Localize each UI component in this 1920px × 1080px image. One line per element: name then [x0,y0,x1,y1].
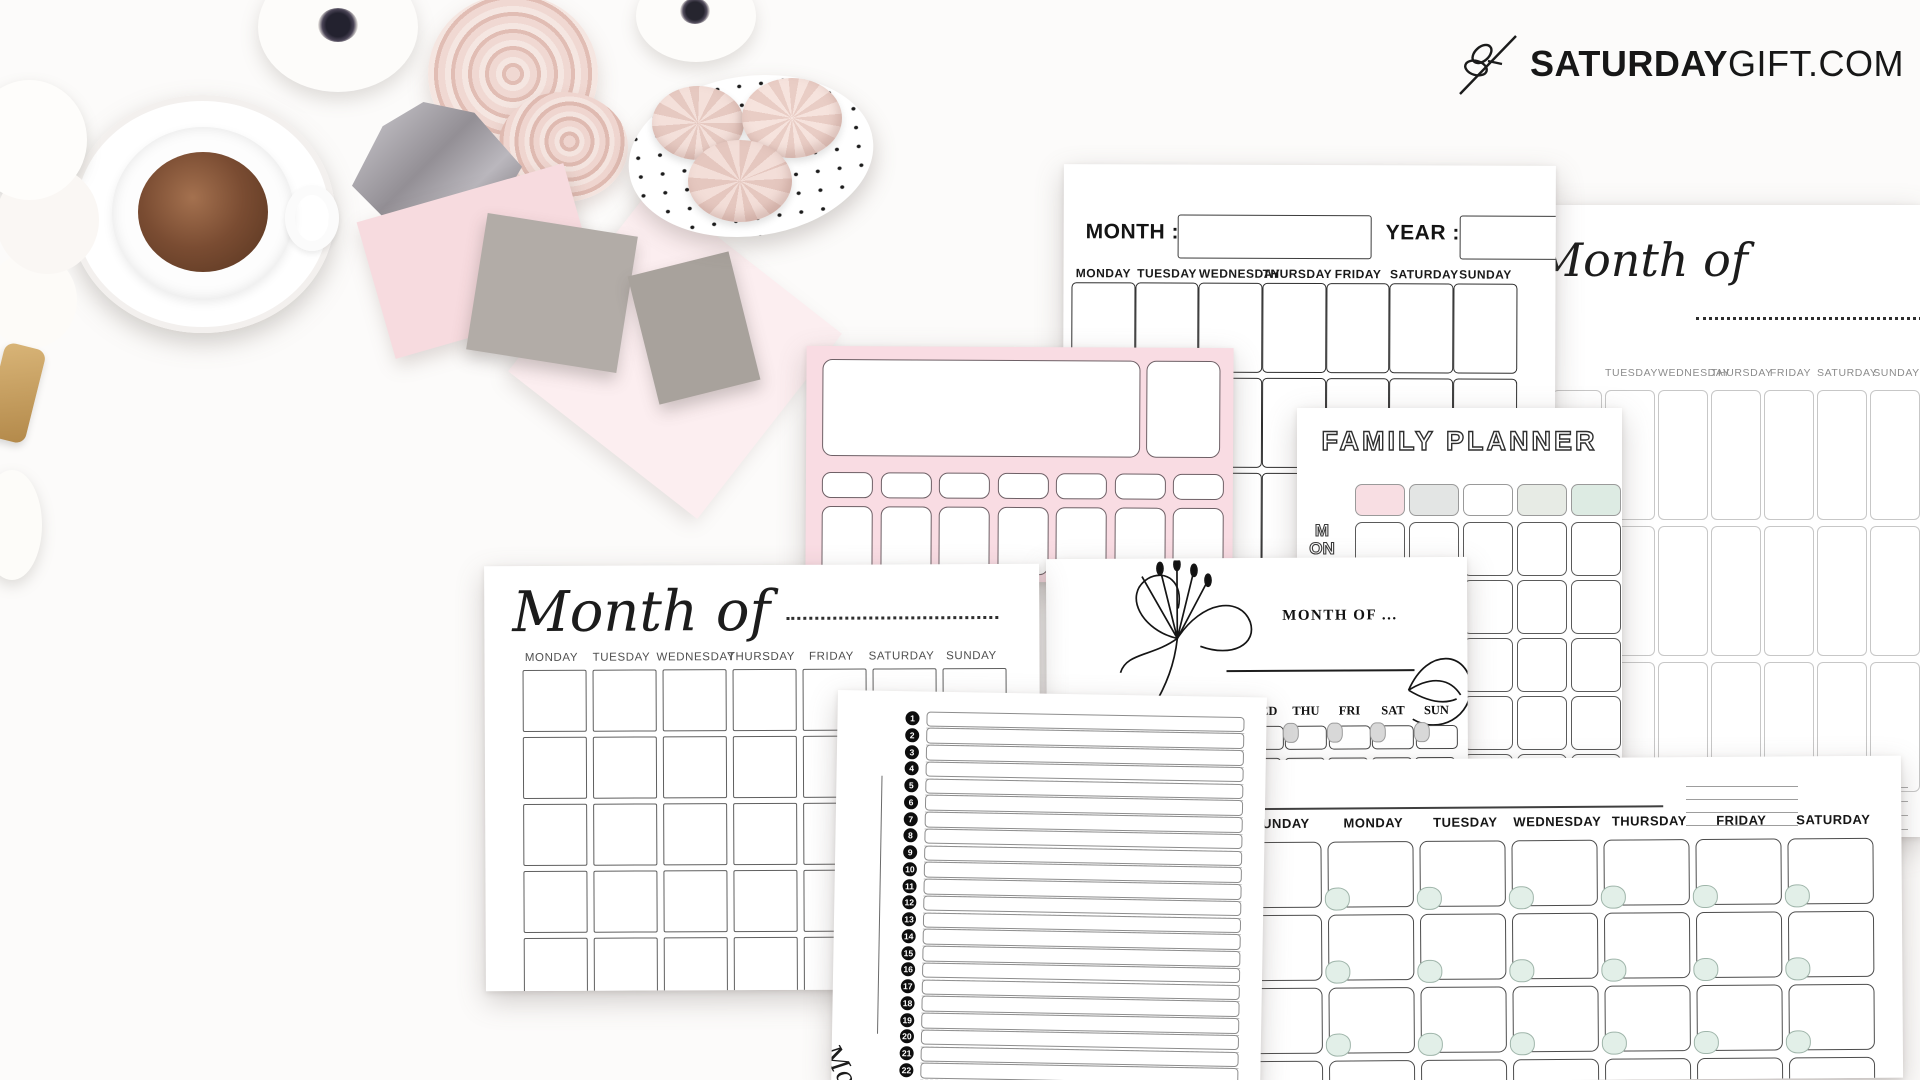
calendar-cell[interactable] [1421,1059,1507,1080]
calendar-cell[interactable] [523,737,587,799]
day-label: THU [1284,704,1328,719]
row-number-badge: 16 [901,962,915,976]
calendar-cell[interactable] [523,871,587,933]
day-label: MONDAY [1072,266,1136,280]
row-number-badge: 3 [905,745,919,759]
brand-name-light: GIFT.COM [1728,43,1904,84]
brand-logo[interactable]: SATURDAYGIFT.COM [1452,28,1904,100]
day-label: TUESDAY [586,651,656,663]
day-label: THURSDAY [1263,267,1327,281]
pink-day-header-cells[interactable] [822,472,1224,500]
day-label: WEDNESDAY [656,651,726,663]
calendar-bottom-grid[interactable] [1235,838,1875,1080]
member-color-box [1571,484,1621,516]
calendar-cell[interactable] [1605,1058,1691,1080]
meringue-3 [688,140,792,222]
calendar-cell[interactable] [1517,696,1567,750]
calendar-cell[interactable] [594,937,658,991]
calendar-cell[interactable] [1420,986,1506,1053]
calendar-cell[interactable] [1788,984,1874,1051]
calendar-cell[interactable] [1390,283,1454,373]
calendar-cell[interactable] [1262,283,1326,373]
flower-line-art [1082,560,1273,711]
row-number-badge: 17 [901,979,915,993]
calendar-cell[interactable] [1764,526,1814,656]
day-label: SATURDAY [1390,267,1454,281]
row-number-badge: 19 [900,1013,914,1027]
calendar-cell[interactable] [1326,283,1390,373]
day-label: SUN [1415,703,1459,718]
calendar-cell[interactable] [1329,1060,1415,1080]
calendar-cell[interactable] [1513,1059,1599,1080]
day-label: WEDNESDAY [1658,367,1711,379]
calendar-cell[interactable] [663,803,727,865]
calendar-cell[interactable] [1327,841,1413,908]
calendar-cell[interactable] [1817,390,1867,520]
month-label: MONTH : [1086,220,1179,244]
calendar-right-day-row: TUESDAYWEDNESDAYTHURSDAYFRIDAYSATURDAYSU… [1605,367,1920,379]
row-number-badge: 4 [905,761,919,775]
calendar-cell[interactable] [1511,840,1597,907]
calendar-cell[interactable] [1764,390,1814,520]
row-number-badge: 9 [903,845,917,859]
calendar-cell[interactable] [1328,987,1414,1054]
day-label: THURSDAY [1603,813,1695,829]
calendar-cell[interactable] [1603,839,1689,906]
month-input-box[interactable] [1178,215,1372,260]
floral-title-line[interactable] [1226,669,1414,672]
row-number-badge: 8 [903,828,917,842]
calendar-cell[interactable] [663,870,727,932]
calendar-cell[interactable] [1870,390,1920,520]
day-label: WEDNESDAY [1511,814,1603,830]
calendar-cell[interactable] [1696,911,1782,978]
calendar-cell[interactable] [997,473,1048,499]
calendar-cell[interactable] [1658,526,1708,656]
member-color-box [1463,484,1513,516]
calendar-cell[interactable] [1787,838,1873,905]
calendar-cell[interactable] [593,669,657,731]
mockup-canvas: Month of TUESDAYWEDNESDAYTHURSDAYFRIDAYS… [0,0,1920,1080]
calendar-left-day-row: MONDAYTUESDAYWEDNESDAYTHURSDAYFRIDAYSATU… [516,650,1006,664]
calendar-cell[interactable] [1696,984,1782,1051]
calendar-cell[interactable] [1372,725,1414,749]
day-label: TUESDAY [1605,367,1658,379]
calendar-cell[interactable] [1604,912,1690,979]
cup-handle [285,185,339,251]
calendar-cell[interactable] [1056,473,1107,499]
calendar-cell[interactable] [523,804,587,866]
calendar-cell[interactable] [1697,1057,1783,1080]
row-number-badge: 22 [899,1063,913,1077]
calendar-cell[interactable] [1571,696,1621,750]
calendar-cell[interactable] [1711,526,1761,656]
gray-paper-card [466,213,638,373]
day-label: SATURDAY [1817,367,1870,379]
calendar-cell[interactable] [1571,522,1621,576]
day-label: FRI [1328,703,1372,718]
calendar-cell[interactable] [1419,840,1505,907]
calendar-top-day-row: MONDAYTUESDAYWEDNESDAYTHURSDAYFRIDAYSATU… [1072,266,1518,282]
calendar-cell[interactable] [593,736,657,798]
calendar-cell[interactable] [822,472,873,498]
family-member-color-boxes[interactable] [1355,484,1621,516]
calendar-cell[interactable] [1453,284,1517,374]
numbered-list-page: 1 2 3 4 5 6 7 8 [831,690,1267,1080]
calendar-cell[interactable] [1328,914,1414,981]
day-label: SATURDAY [866,650,936,662]
day-label: SUNDAY [1870,367,1920,379]
calendar-cell[interactable] [1695,838,1781,905]
member-color-box [1517,484,1567,516]
calendar-cell[interactable] [1870,526,1920,656]
calendar-cell[interactable] [1114,473,1165,499]
year-label: YEAR : [1386,221,1460,245]
row-number-badge: 2 [905,728,919,742]
floral-title: MONTH OF ... [1282,607,1397,625]
row-number-badge: 20 [900,1029,914,1043]
numbered-rows: 1 2 3 4 5 6 7 8 [831,709,1266,1080]
calendar-cell[interactable] [1329,725,1371,749]
peek-notes-lines [1686,786,1798,834]
calendar-right-script-title: Month of [1550,233,1748,287]
day-label: WEDNESDAY [1199,267,1263,281]
calendar-cell[interactable] [733,803,797,865]
day-label: THURSDAY [726,651,796,663]
row-number-badge: 15 [901,946,915,960]
calendar-cell[interactable] [1817,526,1867,656]
row-number-badge: 1 [905,711,919,725]
row-number-badge: 12 [902,895,916,909]
calendar-cell[interactable] [1463,580,1513,634]
calendar-cell[interactable] [1517,522,1567,576]
calendar-cell[interactable] [1512,986,1598,1053]
calendar-cell[interactable] [733,736,797,798]
day-label: FRIDAY [1764,367,1817,379]
pink-title-box[interactable] [822,359,1141,458]
row-number-badge: 6 [904,795,918,809]
day-label: SATURDAY [1787,812,1879,828]
day-label: SUNDAY [1454,268,1518,282]
calendar-cell[interactable] [523,670,587,732]
fill-in-dotted-line[interactable] [786,616,998,620]
calendar-cell[interactable] [880,472,931,498]
calendar-cell[interactable] [664,937,728,991]
calendar-cell[interactable] [1416,725,1458,749]
calendar-cell[interactable] [663,669,727,731]
calendar-cell[interactable] [1658,390,1708,520]
calendar-cell[interactable] [663,736,727,798]
calendar-cell[interactable] [734,937,798,991]
coffee-surface [138,152,268,272]
calendar-cell[interactable] [1463,696,1513,750]
calendar-cell[interactable] [1571,580,1621,634]
day-label: SUNDAY [936,650,1006,662]
day-label: TUESDAY [1419,814,1511,830]
calendar-cell[interactable] [1463,638,1513,692]
day-label: MONDAY [1327,815,1419,831]
header-rule [1251,805,1663,809]
white-flower-bottom-left [0,470,42,580]
day-label: TUESDAY [1135,266,1199,280]
brand-name-strong: SATURDAY [1530,43,1728,84]
row-number-badge: 18 [900,996,914,1010]
calendar-cell[interactable] [1604,985,1690,1052]
calendar-cell[interactable] [1512,913,1598,980]
calendar-cell[interactable] [1789,1057,1875,1080]
anemone-center [318,8,358,42]
calendar-cell[interactable] [1420,913,1506,980]
calendar-cell[interactable] [733,669,797,731]
day-label: THURSDAY [1711,367,1764,379]
day-label: FRIDAY [796,651,866,663]
calendar-left-script-title: Month of [512,579,770,645]
row-number-badge: 14 [902,929,916,943]
fill-in-dotted-line[interactable] [1696,317,1920,320]
day-label: FRIDAY [1326,267,1390,281]
row-number-badge: 10 [903,862,917,876]
row-number-badge: 5 [904,778,918,792]
family-planner-title: FAMILY PLANNER [1297,426,1622,457]
member-color-box [1409,484,1459,516]
year-input-box[interactable] [1460,216,1556,260]
calendar-cell[interactable] [1517,580,1567,634]
row-number-badge: 7 [904,812,918,826]
row-number-badge: 11 [902,879,916,893]
calendar-cell[interactable] [939,473,990,499]
day-label: MONDAY [516,652,586,664]
calendar-cell[interactable] [1463,522,1513,576]
calendar-cell[interactable] [1711,390,1761,520]
calendar-cell[interactable] [1788,911,1874,978]
row-number-badge: 13 [902,912,916,926]
gold-clips [0,341,47,444]
pink-side-box[interactable] [1146,361,1221,458]
calendar-cell[interactable] [1517,638,1567,692]
calendar-cell[interactable] [593,803,657,865]
calendar-cell[interactable] [593,870,657,932]
day-label: SAT [1371,703,1415,718]
calendar-cell[interactable] [1173,474,1224,500]
pink-calendar [805,346,1233,583]
calendar-cell[interactable] [733,870,797,932]
member-color-box [1355,484,1405,516]
calendar-cell[interactable] [524,938,588,991]
ribbon-bow-icon [1452,28,1524,100]
calendar-cell[interactable] [1571,638,1621,692]
calendar-cell[interactable] [1285,726,1327,750]
row-number-badge: 21 [900,1046,914,1060]
calendar-mint-tabs: SUNDAYMONDAYTUESDAYWEDNESDAYTHURSDAYFRID… [1221,756,1903,1080]
